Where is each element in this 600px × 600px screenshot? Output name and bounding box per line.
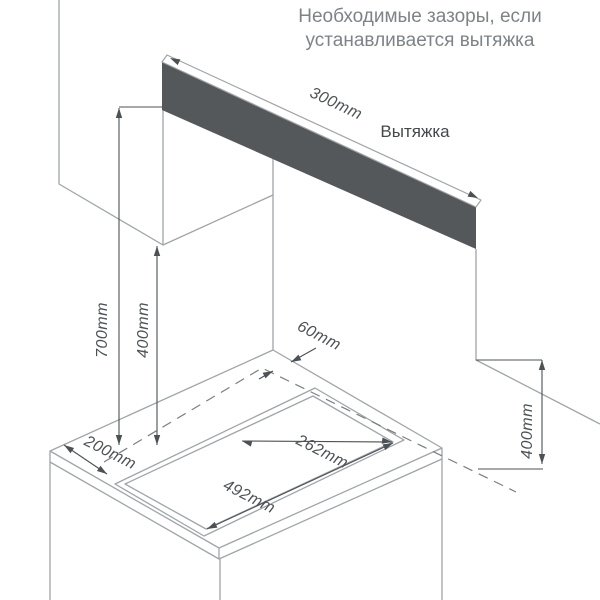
- dim-400L-arrow-top: [154, 246, 160, 256]
- dim-label-492mm: 492mm: [220, 477, 277, 518]
- dim-label-300mm: 300mm: [307, 84, 365, 123]
- dim-label-200mm: 200mm: [80, 432, 138, 473]
- counter: [50, 350, 442, 600]
- dim-label-400mm-right: 400mm: [519, 403, 536, 459]
- dim-262-arrow-left: [241, 438, 252, 447]
- middle-wall-base: [163, 195, 273, 245]
- left-wall-edge: [59, 0, 163, 245]
- diagram-title-line1: Необходимые зазоры, если: [298, 6, 541, 27]
- dim-700-arrow-top: [116, 108, 122, 118]
- hood: [162, 55, 481, 249]
- dim-700-arrow-bottom: [116, 435, 122, 445]
- dashed-reference-line: [104, 368, 516, 492]
- cabinet-sides: [50, 459, 442, 600]
- clearance-diagram: Необходимые зазоры, если устанавливается…: [0, 0, 600, 600]
- hood-label: Вытяжка: [380, 122, 450, 141]
- diagram-title-line2: устанавливается вытяжка: [306, 30, 535, 51]
- dim-200-arrow-right: [97, 466, 109, 477]
- dim-700-line: [119, 107, 162, 445]
- dim-label-700mm: 700mm: [94, 302, 111, 358]
- dim-400L-arrow-bottom: [154, 435, 160, 445]
- dim-label-262mm: 262mm: [292, 431, 350, 472]
- dim-label-400mm-left: 400mm: [135, 302, 152, 358]
- dim-400R-arrow-top: [539, 360, 545, 370]
- right-wall-base: [476, 249, 600, 424]
- dim-400R-arrow-bottom: [539, 454, 545, 464]
- diagram-labels: Необходимые зазоры, если устанавливается…: [80, 6, 541, 517]
- dim-label-60mm: 60mm: [294, 318, 343, 354]
